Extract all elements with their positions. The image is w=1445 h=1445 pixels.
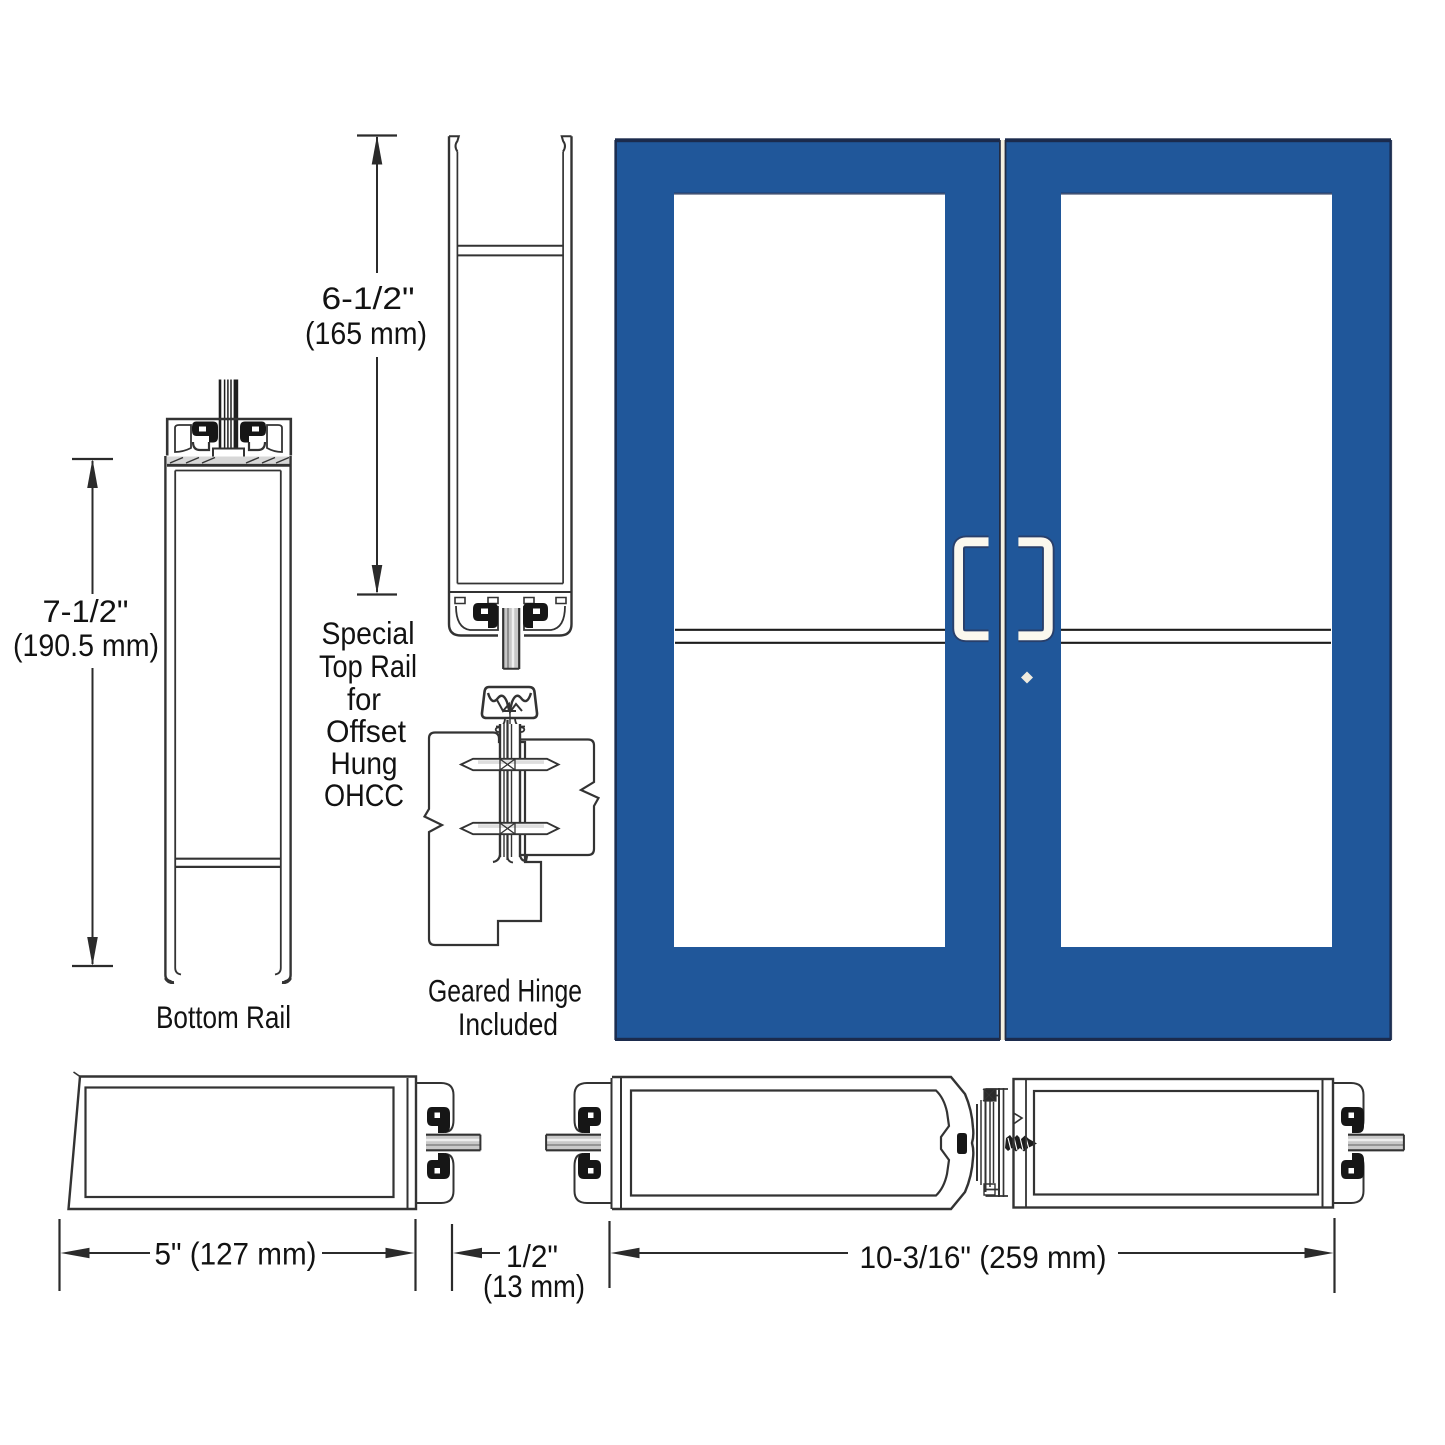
svg-text:(190.5 mm): (190.5 mm)	[13, 627, 159, 663]
svg-text:6-1/2": 6-1/2"	[322, 280, 415, 316]
svg-text:Bottom Rail: Bottom Rail	[156, 999, 291, 1035]
svg-text:for: for	[347, 681, 381, 717]
svg-text:Special: Special	[322, 615, 415, 651]
svg-text:Geared Hinge: Geared Hinge	[428, 973, 582, 1009]
svg-text:Included: Included	[458, 1006, 558, 1042]
svg-text:(165 mm): (165 mm)	[305, 315, 427, 351]
svg-text:10-3/16" (259 mm): 10-3/16" (259 mm)	[860, 1239, 1107, 1275]
svg-text:Top Rail: Top Rail	[319, 648, 417, 684]
svg-text:5" (127 mm): 5" (127 mm)	[155, 1236, 317, 1272]
svg-text:Offset: Offset	[326, 713, 406, 749]
svg-text:7-1/2": 7-1/2"	[43, 593, 129, 629]
svg-text:(13 mm): (13 mm)	[483, 1268, 585, 1304]
svg-text:OHCC: OHCC	[324, 777, 404, 813]
svg-text:Hung: Hung	[331, 745, 398, 781]
